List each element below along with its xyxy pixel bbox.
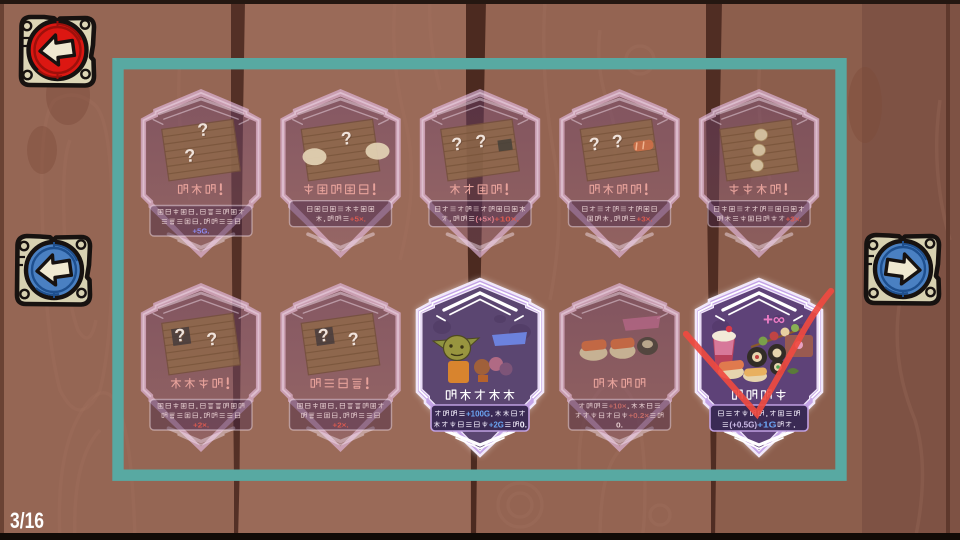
- svg-text:+3×.: +3×.: [637, 214, 653, 223]
- svg-text:+∞: +∞: [763, 310, 785, 329]
- svg-text:+100G: +100G: [466, 409, 490, 418]
- svg-text:0.: 0.: [616, 421, 623, 430]
- svg-text:+0.2×: +0.2×: [629, 411, 650, 420]
- svg-text:+1G: +1G: [757, 420, 777, 429]
- svg-text:+10×: +10×: [609, 402, 627, 411]
- svg-text:+5G.: +5G.: [193, 227, 210, 236]
- svg-text:(+5×): (+5×): [476, 214, 495, 223]
- svg-text:3/16: 3/16: [10, 508, 44, 533]
- svg-text:+10×.: +10×.: [494, 214, 519, 223]
- svg-text:+3×.: +3×.: [786, 214, 802, 223]
- svg-text:+2G: +2G: [489, 420, 504, 429]
- svg-text:(+0.5G): (+0.5G): [729, 420, 757, 429]
- svg-text:+2×.: +2×.: [333, 421, 349, 430]
- svg-text:0.: 0.: [520, 420, 527, 429]
- svg-text:+5×.: +5×.: [350, 214, 366, 223]
- svg-text:+2×.: +2×.: [193, 421, 209, 430]
